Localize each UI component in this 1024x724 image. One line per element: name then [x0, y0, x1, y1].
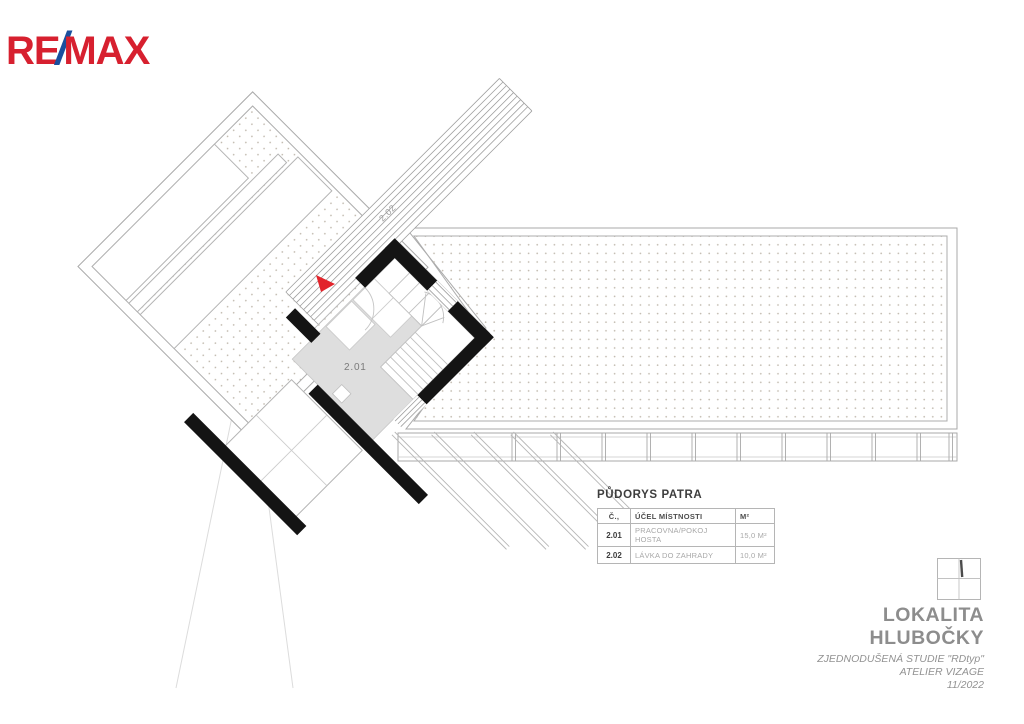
study-name: ZJEDNODUŠENÁ STUDIE "RDtyp"	[817, 653, 984, 666]
remax-logo-max: MAX	[63, 29, 149, 73]
project-date: 11/2022	[817, 679, 984, 692]
pergola-railing	[398, 433, 957, 461]
roof-terrace	[406, 228, 957, 429]
room-area: 15,0 M²	[736, 524, 775, 547]
table-row: 2.02 LÁVKA DO ZAHRADY 10,0 M²	[598, 547, 775, 564]
room-purpose: LÁVKA DO ZAHRADY	[631, 547, 736, 564]
project-subtitle: ZJEDNODUŠENÁ STUDIE "RDtyp" ATELIER VIZA…	[817, 653, 984, 691]
project-location: LOKALITA HLUBOČKY	[870, 604, 985, 650]
remax-logo: RE/MAX	[6, 26, 149, 73]
room-table-header: Č., ÚČEL MÍSTNOSTI M²	[598, 509, 775, 524]
atelier-logo-icon	[936, 557, 982, 602]
room-number: 2.02	[598, 547, 631, 564]
room-area: 10,0 M²	[736, 547, 775, 564]
location-line2: HLUBOČKY	[870, 627, 985, 650]
col-number: Č.,	[598, 509, 631, 524]
table-row: 2.01 PRACOVNA/POKOJ HOSTA 15,0 M²	[598, 524, 775, 547]
location-line1: LOKALITA	[870, 604, 985, 627]
room-table: Č., ÚČEL MÍSTNOSTI M² 2.01 PRACOVNA/POKO…	[597, 508, 775, 564]
room-number: 2.01	[598, 524, 631, 547]
drawing-sheet: 2.02 2.01 RE/MAX PŮDORYS PATRA Č., ÚČEL …	[0, 0, 1024, 724]
studio-name: ATELIER VIZAGE	[817, 666, 984, 679]
col-area: M²	[736, 509, 775, 524]
remax-logo-re: RE	[6, 29, 60, 73]
room-legend: PŮDORYS PATRA Č., ÚČEL MÍSTNOSTI M² 2.01…	[597, 489, 777, 564]
room-purpose: PRACOVNA/POKOJ HOSTA	[631, 524, 736, 547]
legend-title: PŮDORYS PATRA	[597, 489, 777, 501]
col-purpose: ÚČEL MÍSTNOSTI	[631, 509, 736, 524]
room1-label: 2.01	[344, 362, 367, 373]
